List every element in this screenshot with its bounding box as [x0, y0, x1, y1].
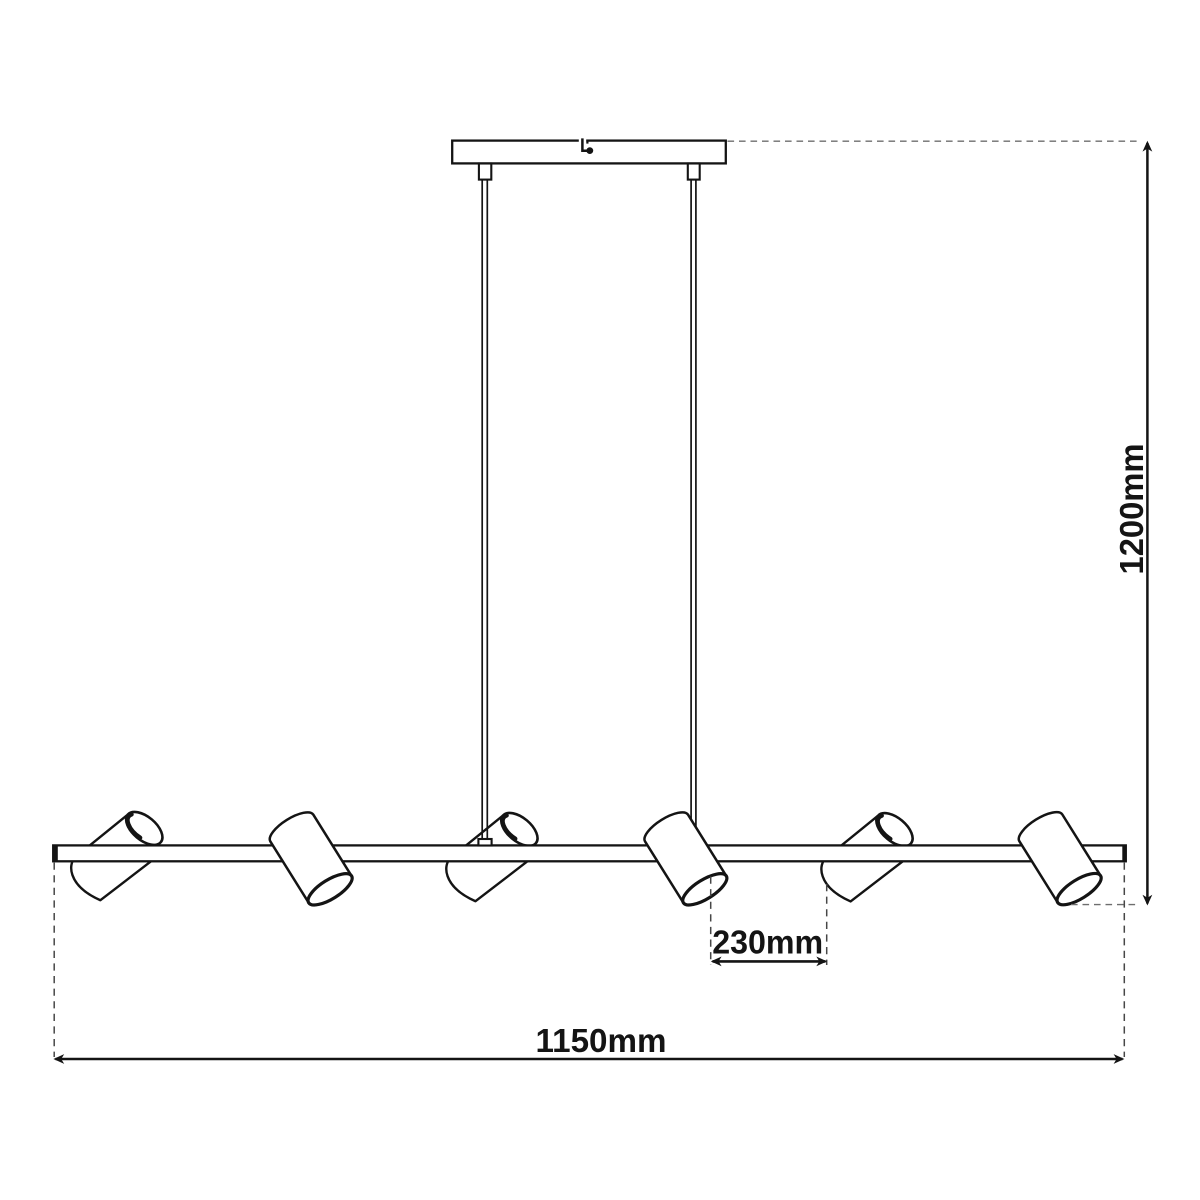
svg-text:230mm: 230mm [712, 924, 823, 961]
svg-text:1200mm: 1200mm [1114, 444, 1151, 575]
svg-text:1150mm: 1150mm [536, 1023, 667, 1060]
